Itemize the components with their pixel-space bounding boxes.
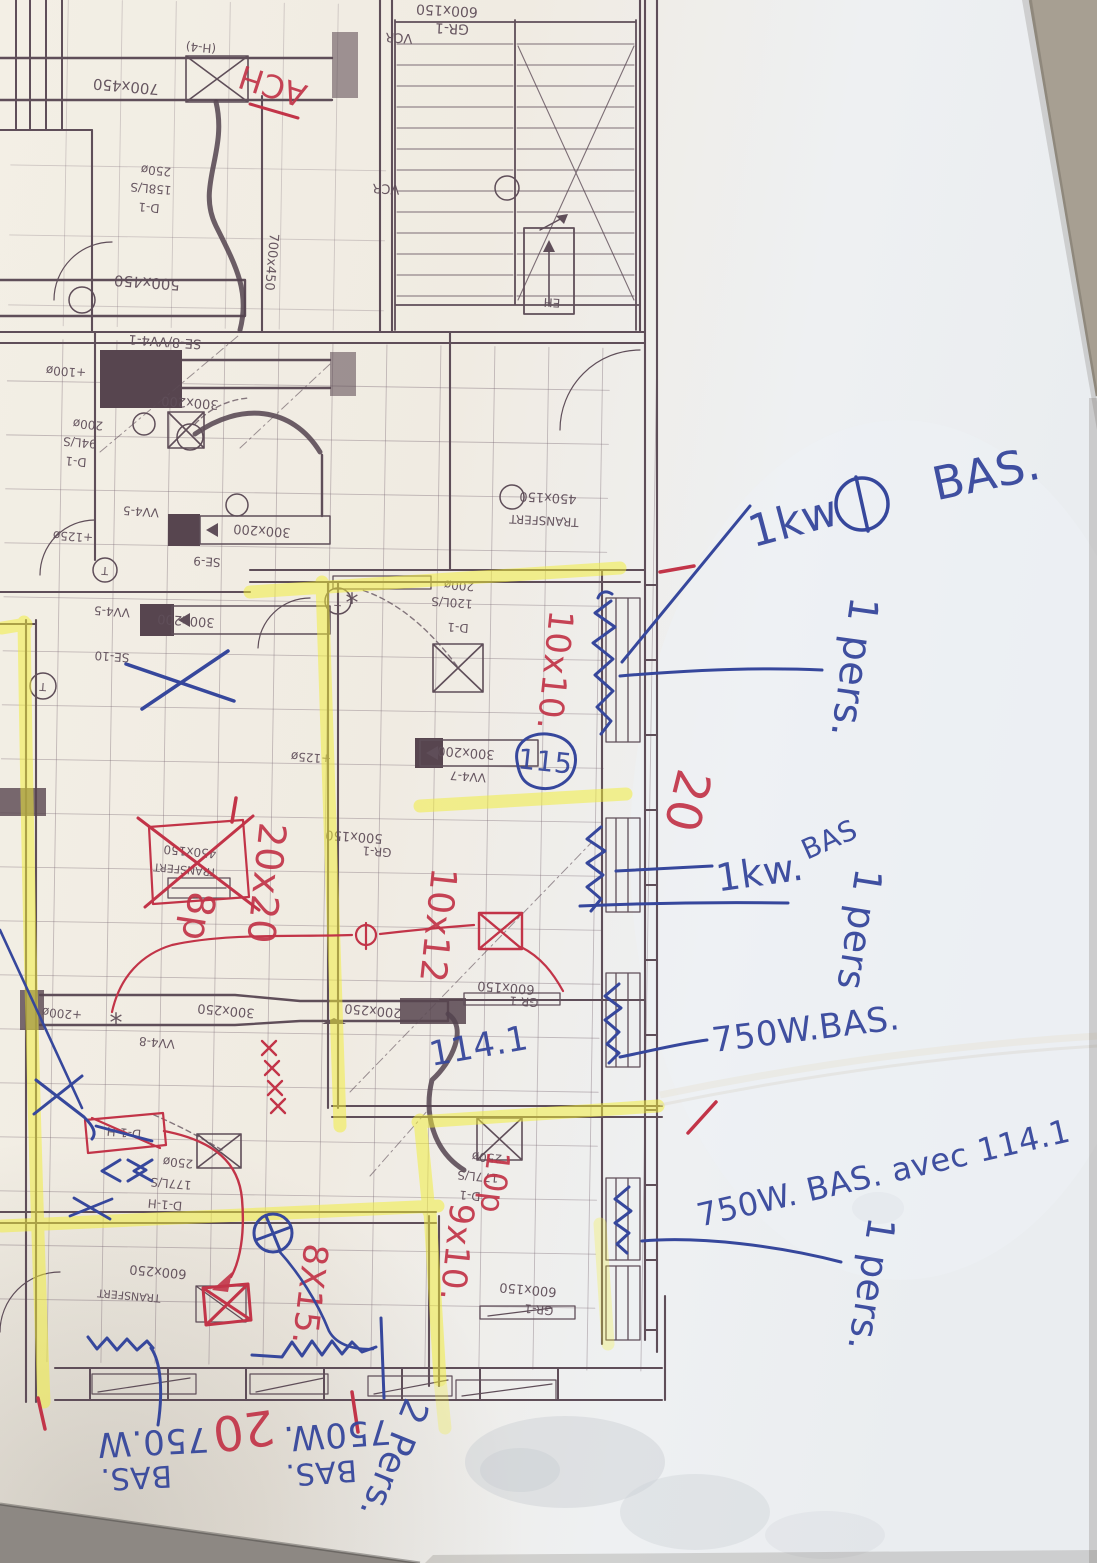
- printed-label-250: 250ø: [140, 162, 171, 179]
- printed-label-120ls: 120L/S: [431, 594, 473, 611]
- printed-label-125: +125ø: [52, 528, 93, 545]
- printed-label-t: T: [334, 595, 343, 609]
- printed-label-t: T: [101, 564, 110, 578]
- printed-label-gr1: GR-1: [435, 19, 470, 37]
- blue-annotation-115: 115: [516, 742, 574, 781]
- blue-annotation-750w: 750.W: [96, 1419, 210, 1465]
- printed-label-94ls: 94L/S: [63, 434, 98, 451]
- printed-label-d1: D-1: [138, 200, 160, 216]
- printed-label-t: T: [39, 680, 48, 694]
- blue-annotation-bas: BAS.: [284, 1452, 358, 1492]
- printed-label-100: +100ø: [45, 363, 86, 380]
- printed-label-h4: (H-4): [185, 39, 216, 56]
- printed-label-d1: D-1: [65, 454, 87, 470]
- printed-label-d1: D-1: [447, 620, 469, 635]
- printed-label-gr1: GR-1: [362, 844, 392, 860]
- printed-label-600x150: 600x150: [416, 0, 478, 19]
- printed-label-: *: [346, 589, 359, 619]
- printed-label-gr1: GR-1: [524, 1301, 554, 1317]
- photo-of-annotated-floor-plan: Photograph of a printed HVAC floor plan …: [0, 0, 1097, 1563]
- printed-label-vv47: VV4-7: [450, 768, 487, 784]
- printed-label-vcr: VCR: [385, 29, 413, 45]
- printed-label-se10: SE-10: [94, 648, 130, 664]
- printed-label-: *: [110, 1009, 123, 1039]
- printed-label-450x150: 450x150: [519, 488, 577, 506]
- printed-label-200: 200ø: [72, 416, 103, 433]
- printed-label-250: 250ø: [162, 1154, 193, 1171]
- red-annotation-20: 20: [209, 1398, 278, 1462]
- red-annotation-8p: 8p: [173, 889, 224, 945]
- printed-label-eh: EH: [543, 295, 560, 310]
- printed-label-gr1: GR-1: [509, 994, 539, 1010]
- blue-annotation-bas: BAS.: [99, 1458, 172, 1497]
- printed-label-vv45: VV4-5: [94, 603, 131, 619]
- printed-label-vcr: VCR: [372, 180, 400, 196]
- desk-strip-right: [1089, 398, 1097, 1563]
- printed-label-vv45: VV4-5: [123, 503, 160, 519]
- printed-label-se9: SE-9: [193, 554, 221, 570]
